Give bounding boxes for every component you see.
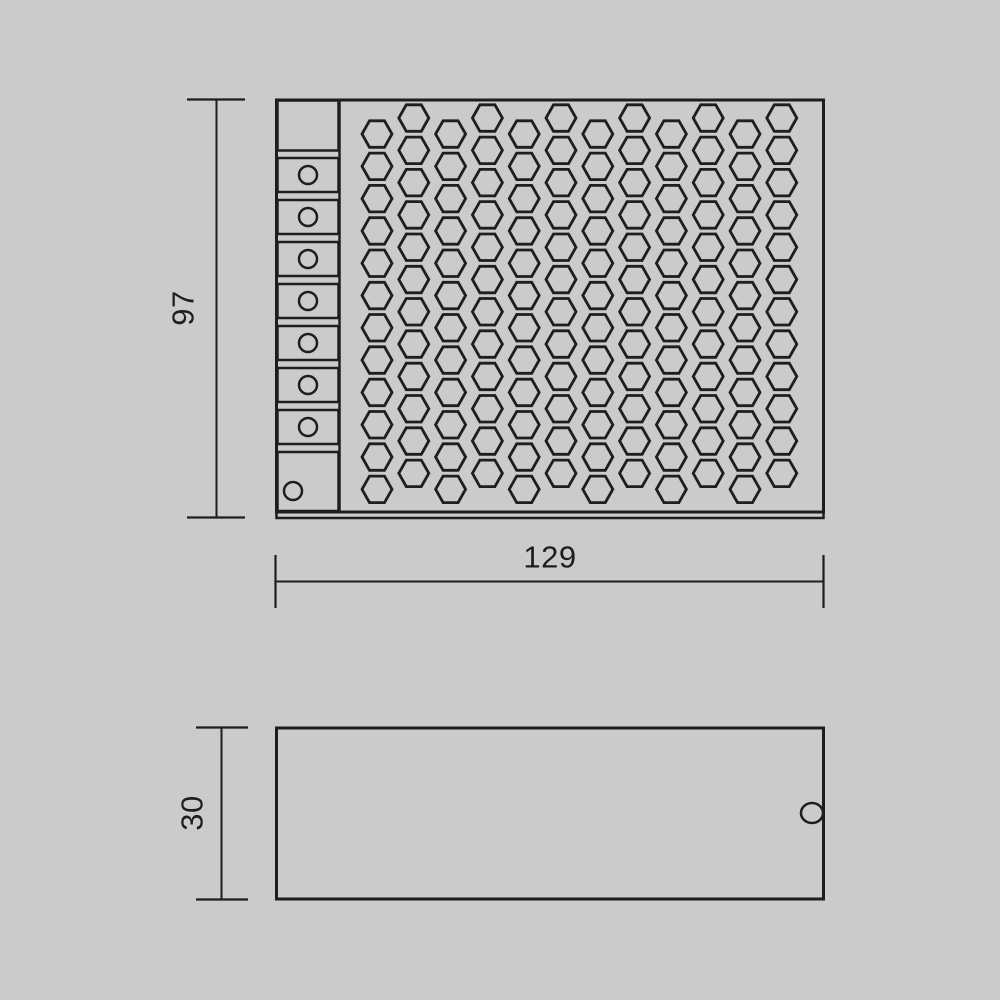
terminal-segment bbox=[278, 158, 339, 192]
vent-hole bbox=[472, 396, 502, 423]
vent-hole bbox=[620, 234, 650, 261]
vent-hole bbox=[436, 218, 466, 245]
vent-hole bbox=[583, 315, 613, 342]
vent-hole bbox=[509, 250, 539, 277]
side-notch bbox=[801, 803, 823, 823]
vent-hole bbox=[693, 396, 723, 423]
vent-hole bbox=[509, 347, 539, 374]
vent-hole bbox=[436, 153, 466, 180]
vent-hole bbox=[656, 412, 686, 439]
terminal-screw bbox=[284, 482, 302, 500]
vent-hole bbox=[656, 476, 686, 503]
vent-hole bbox=[767, 202, 797, 229]
vent-hole bbox=[730, 218, 760, 245]
vent-hole bbox=[767, 105, 797, 132]
vent-hole bbox=[509, 121, 539, 148]
vent-hole bbox=[362, 153, 392, 180]
vent-hole bbox=[509, 218, 539, 245]
vent-hole bbox=[399, 105, 429, 132]
vent-hole bbox=[693, 428, 723, 455]
vent-hole bbox=[583, 282, 613, 309]
vent-hole bbox=[399, 428, 429, 455]
vent-hole bbox=[399, 169, 429, 196]
vent-hole bbox=[693, 299, 723, 326]
vent-grid bbox=[362, 105, 797, 503]
vent-hole bbox=[472, 299, 502, 326]
vent-hole bbox=[436, 185, 466, 212]
terminal-screw bbox=[299, 376, 317, 394]
vent-hole bbox=[656, 153, 686, 180]
vent-hole bbox=[472, 331, 502, 358]
vent-hole bbox=[583, 379, 613, 406]
vent-hole bbox=[656, 282, 686, 309]
vent-hole bbox=[767, 137, 797, 164]
vent-hole bbox=[472, 234, 502, 261]
vent-hole bbox=[399, 299, 429, 326]
terminal-screw bbox=[299, 250, 317, 268]
vent-hole bbox=[693, 137, 723, 164]
vent-hole bbox=[362, 379, 392, 406]
vent-hole bbox=[730, 476, 760, 503]
vent-hole bbox=[767, 396, 797, 423]
vent-hole bbox=[436, 282, 466, 309]
vent-hole bbox=[472, 137, 502, 164]
vent-hole bbox=[693, 202, 723, 229]
vent-hole bbox=[583, 412, 613, 439]
vent-hole bbox=[656, 315, 686, 342]
drawing-canvas: 97 129 30 bbox=[0, 0, 1000, 1000]
vent-hole bbox=[362, 218, 392, 245]
vent-hole bbox=[767, 460, 797, 487]
vent-hole bbox=[546, 331, 576, 358]
vent-hole bbox=[399, 331, 429, 358]
vent-hole bbox=[767, 331, 797, 358]
vent-hole bbox=[620, 299, 650, 326]
vent-hole bbox=[362, 476, 392, 503]
terminal-segment bbox=[278, 242, 339, 276]
vent-hole bbox=[472, 363, 502, 390]
vent-hole bbox=[583, 185, 613, 212]
vent-hole bbox=[693, 169, 723, 196]
vent-hole bbox=[509, 476, 539, 503]
dim-depth: 30 bbox=[175, 728, 249, 900]
vent-hole bbox=[436, 347, 466, 374]
vent-hole bbox=[509, 444, 539, 471]
vent-hole bbox=[656, 121, 686, 148]
vent-hole bbox=[730, 282, 760, 309]
dim-depth-label: 30 bbox=[175, 795, 210, 830]
vent-hole bbox=[399, 396, 429, 423]
vent-hole bbox=[620, 202, 650, 229]
vent-hole bbox=[546, 428, 576, 455]
vent-hole bbox=[546, 234, 576, 261]
side-view-outline bbox=[277, 728, 824, 899]
vent-hole bbox=[436, 315, 466, 342]
vent-hole bbox=[767, 299, 797, 326]
vent-hole bbox=[362, 282, 392, 309]
vent-hole bbox=[730, 121, 760, 148]
vent-hole bbox=[656, 218, 686, 245]
vent-hole bbox=[472, 105, 502, 132]
vent-hole bbox=[730, 379, 760, 406]
vent-hole bbox=[767, 363, 797, 390]
dim-width: 129 bbox=[276, 540, 824, 609]
terminal-screw bbox=[299, 334, 317, 352]
vent-hole bbox=[730, 444, 760, 471]
terminal-segment bbox=[278, 452, 339, 511]
vent-hole bbox=[509, 315, 539, 342]
vent-hole bbox=[362, 250, 392, 277]
vent-hole bbox=[583, 250, 613, 277]
vent-hole bbox=[730, 153, 760, 180]
vent-hole bbox=[362, 412, 392, 439]
vent-hole bbox=[546, 105, 576, 132]
dim-height-label: 97 bbox=[166, 290, 201, 325]
terminal-segment bbox=[278, 200, 339, 234]
vent-hole bbox=[362, 121, 392, 148]
vent-hole bbox=[767, 428, 797, 455]
vent-hole bbox=[399, 460, 429, 487]
vent-hole bbox=[399, 234, 429, 261]
vent-hole bbox=[509, 412, 539, 439]
vent-hole bbox=[583, 121, 613, 148]
vent-hole bbox=[730, 347, 760, 374]
vent-hole bbox=[693, 331, 723, 358]
vent-hole bbox=[620, 105, 650, 132]
vent-hole bbox=[693, 266, 723, 293]
vent-hole bbox=[583, 218, 613, 245]
vent-hole bbox=[620, 266, 650, 293]
terminal-screw bbox=[299, 166, 317, 184]
vent-hole bbox=[472, 202, 502, 229]
vent-hole bbox=[362, 347, 392, 374]
terminal-segment bbox=[278, 410, 339, 444]
vent-hole bbox=[656, 444, 686, 471]
vent-hole bbox=[583, 444, 613, 471]
vent-hole bbox=[362, 444, 392, 471]
vent-hole bbox=[362, 185, 392, 212]
top-view bbox=[277, 100, 824, 518]
vent-hole bbox=[583, 476, 613, 503]
vent-hole bbox=[399, 137, 429, 164]
vent-hole bbox=[509, 379, 539, 406]
terminal-screw bbox=[299, 292, 317, 310]
terminal-segment bbox=[278, 326, 339, 360]
vent-hole bbox=[620, 363, 650, 390]
vent-hole bbox=[436, 250, 466, 277]
vent-hole bbox=[767, 266, 797, 293]
vent-hole bbox=[730, 250, 760, 277]
vent-hole bbox=[620, 428, 650, 455]
vent-hole bbox=[472, 169, 502, 196]
vent-hole bbox=[656, 347, 686, 374]
terminal-screw bbox=[299, 418, 317, 436]
vent-hole bbox=[546, 202, 576, 229]
vent-hole bbox=[509, 282, 539, 309]
terminal-segment bbox=[278, 284, 339, 318]
vent-hole bbox=[620, 169, 650, 196]
vent-hole bbox=[693, 460, 723, 487]
vent-hole bbox=[472, 460, 502, 487]
vent-hole bbox=[399, 266, 429, 293]
vent-hole bbox=[546, 363, 576, 390]
vent-hole bbox=[620, 331, 650, 358]
vent-hole bbox=[656, 185, 686, 212]
terminal-block bbox=[278, 101, 339, 512]
vent-hole bbox=[436, 444, 466, 471]
vent-hole bbox=[583, 347, 613, 374]
base-strip bbox=[277, 512, 824, 518]
vent-hole bbox=[546, 460, 576, 487]
vent-hole bbox=[436, 412, 466, 439]
vent-hole bbox=[546, 266, 576, 293]
vent-hole bbox=[656, 250, 686, 277]
vent-hole bbox=[730, 412, 760, 439]
vent-hole bbox=[546, 299, 576, 326]
vent-hole bbox=[620, 460, 650, 487]
vent-hole bbox=[767, 169, 797, 196]
vent-hole bbox=[399, 202, 429, 229]
vent-hole bbox=[620, 396, 650, 423]
vent-hole bbox=[546, 169, 576, 196]
vent-hole bbox=[399, 363, 429, 390]
dim-width-label: 129 bbox=[523, 540, 576, 575]
vent-hole bbox=[472, 428, 502, 455]
vent-hole bbox=[656, 379, 686, 406]
vent-hole bbox=[509, 185, 539, 212]
terminal-screw bbox=[299, 208, 317, 226]
vent-hole bbox=[546, 396, 576, 423]
terminal-segment bbox=[278, 368, 339, 402]
technical-drawing: 97 129 30 bbox=[0, 0, 1000, 1000]
vent-hole bbox=[767, 234, 797, 261]
vent-hole bbox=[620, 137, 650, 164]
vent-hole bbox=[693, 234, 723, 261]
dim-height: 97 bbox=[166, 100, 246, 518]
vent-hole bbox=[693, 363, 723, 390]
vent-hole bbox=[436, 379, 466, 406]
vent-hole bbox=[693, 105, 723, 132]
vent-hole bbox=[436, 121, 466, 148]
vent-hole bbox=[472, 266, 502, 293]
vent-hole bbox=[362, 315, 392, 342]
terminal-segment bbox=[278, 101, 339, 151]
vent-hole bbox=[583, 153, 613, 180]
vent-hole bbox=[730, 185, 760, 212]
vent-hole bbox=[730, 315, 760, 342]
vent-hole bbox=[509, 153, 539, 180]
vent-hole bbox=[546, 137, 576, 164]
side-view bbox=[277, 728, 824, 899]
vent-hole bbox=[436, 476, 466, 503]
